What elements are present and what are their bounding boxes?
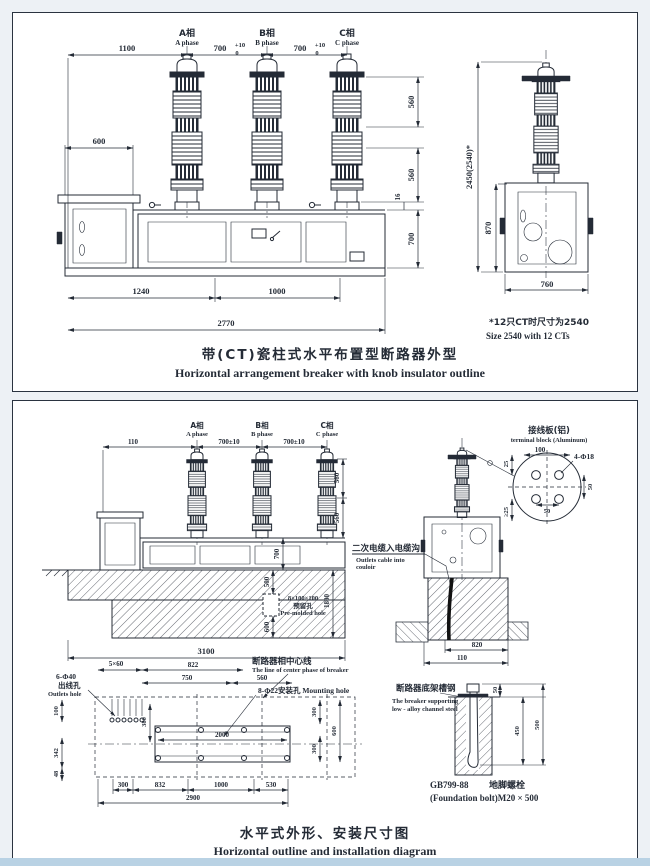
terminal-block-detail: 接线板(铝) terminal block (Aluminum) 100 4-Φ… [466,425,594,524]
plan-centerline-zh: 断路器相中心线 [252,656,312,667]
p1-dim-870: 870 [483,222,493,235]
bolt-en: (Foundation bolt)M20 × 500 [430,793,539,803]
p1-phase-b-en: B phase [255,39,279,47]
insulator-phase-c [330,54,364,202]
channel-en2: low - alloy channel steel [392,706,458,713]
p1-tol-zero-ab: 0 [235,50,238,57]
plan-dim-100: 100 [53,706,60,716]
insulator-phase-a [170,54,204,202]
cable-label-en1: Outlets cable into [356,557,405,564]
terminal-dim-25: 25 [503,460,510,467]
p2-dim-500: 500 [263,576,271,587]
bolt-dim-500: 500 [534,720,541,730]
p2-phase-b-zh: B相 [255,420,269,430]
p1-dim-600: 600 [93,136,106,146]
elev-insulator-c [317,449,337,538]
bolt-dim-50: 50 [492,687,499,694]
p1-title-zh: 带(CT)瓷柱式水平布置型断路器外型 [202,346,458,363]
p2-dim-700-frame: 700 [273,548,281,559]
front-view: A相 A phase B相 B phase C相 C phase 1100 70… [57,27,424,334]
p1-dim-16: 16 [394,193,402,201]
p2-phase-c-zh: C相 [320,420,334,430]
elev-insulator-b [252,449,272,538]
p1-dim-1000: 1000 [269,286,286,296]
p1-dim-560-upper: 560 [406,96,416,109]
side-cabinet [500,183,593,272]
terminal-dim-50r: 50 [587,484,594,491]
front-elevation: A相 A phase B相 B phase C相 C phase 110 700… [42,420,347,661]
p1-phase-c-zh: C相 [339,27,355,39]
p1-tol-plus-ab: +10 [235,42,245,49]
p1-dim-700-bc: 700 [294,43,307,53]
bolt-dim-450: 450 [514,726,521,736]
breaker-frame [65,202,385,276]
drawing-sheet: { "page": { "ink": "#242b36", "backgroun… [0,0,650,866]
p2-hole-en: Pre-molded hole [280,610,326,617]
channel-en1: The breaker supporting [392,698,459,705]
elev-cabinet [97,512,143,570]
plan-dim-750: 750 [182,674,193,682]
plan-dim-530: 530 [266,781,277,789]
p2-title-en: Horizontal outline and installation diag… [214,844,437,858]
p2-dim-700-ab: 700±10 [218,438,240,446]
plan-grid: 5×60 [109,660,124,668]
side-view: 2450(2540)* 870 760 *12只CT时尺寸为2540 Size … [464,50,593,341]
side-foundation [396,578,528,642]
p1-dim-760: 760 [541,279,554,289]
page-bottom-strip [0,858,650,866]
channel-zh: 断路器底架槽钢 [396,683,456,694]
p1-note-zh: *12只CT时尺寸为2540 [489,316,589,328]
p2-dim-560-lower: 560 [333,512,341,523]
elev-frame [140,538,345,568]
p1-tol-plus-bc: +10 [315,42,325,49]
p1-dim-700-frame: 700 [406,233,416,246]
p2-phase-b-en: B phase [251,431,273,438]
p2-phase-a-en: A phase [186,431,208,438]
p1-dim-1240: 1240 [133,286,150,296]
terminal-dim-ge25: ≥25 [503,506,510,517]
terminal-holes: 4-Φ18 [574,452,594,461]
p2-hole-size: 8×100×100 [288,595,318,602]
plan-outlets-en: Outlets hole [48,691,82,698]
plan-outlets-zh: 出线孔 [58,680,81,690]
p1-phase-b-zh: B相 [259,27,275,39]
plan-dim-1000: 1000 [214,781,229,789]
control-cabinet [57,195,140,268]
terminal-label-zh: 接线板(铝) [528,425,570,436]
p1-dim-700-ab: 700 [214,43,227,53]
plan-dim-300b: 300 [118,781,129,789]
cable-label-zh: 二次电缆入电缆沟 [352,543,420,554]
elev-insulator-a [187,449,207,538]
plan-dim-380: 380 [141,717,148,727]
p1-dim-2770: 2770 [218,318,235,328]
p1-phase-a-en: A phase [175,39,199,47]
plan-dim-300tr: 300 [311,707,318,717]
plan-dim-832: 832 [155,781,166,789]
bolt-zh: 地脚螺栓 [489,779,525,791]
p1-dim-total-height: 2450(2540)* [464,145,474,189]
p2-title-zh: 水平式外形、安装尺寸图 [240,825,411,842]
p1-tol-zero-bc: 0 [315,50,318,57]
p1-phase-a-zh: A相 [179,27,195,39]
plan-dim-600r: 600 [331,726,338,736]
side-elevation: 接线板(铝) terminal block (Aluminum) 100 4-Φ… [352,425,594,666]
outlet-holes [110,699,144,722]
plan-outlets-qty: 6-Φ40 [56,672,76,681]
terminal-dim-50b: 50 [544,508,551,515]
plan-dim-342: 342 [53,748,60,758]
p2-dim-600-found: 600 [263,621,271,632]
side-insulator [522,63,570,183]
p2-dim-820: 820 [472,641,483,649]
plan-dim-2900: 2900 [186,794,201,802]
plan-dim-48: 48 [53,770,60,777]
plan-view: 5×60 822 750 560 6-Φ40 出线孔 Outlets hole … [48,656,362,807]
terminal-label-en: terminal block (Aluminum) [511,437,588,444]
p1-dim-1100: 1100 [119,43,136,53]
insulator-phase-b [250,54,284,202]
outline-drawing: A相 A phase B相 B phase C相 C phase 1100 70… [13,13,636,390]
plan-dim-822: 822 [188,661,199,669]
panel-installation-diagram: A相 A phase B相 B phase C相 C phase 110 700… [12,400,638,860]
foundation-bolt-detail: 断路器底架槽钢 The breaker supporting low - all… [392,683,546,803]
p2-phase-c-en: C phase [316,431,338,438]
side-insulator2 [448,448,476,518]
p2-dim-700-bc: 700±10 [283,438,305,446]
plan-dim-560: 560 [257,674,268,682]
bolt-std: GB799-88 [430,780,469,790]
p2-phase-a-zh: A相 [190,420,204,430]
p2-dim-110: 110 [128,438,139,446]
cable-label-en2: couloir [356,564,376,571]
plan-centerline-en: The line of center phase of breaker [252,667,349,674]
p1-note-en: Size 2540 with 12 CTs [486,331,570,341]
p1-title-en: Horizontal arrangement breaker with knob… [175,366,486,380]
panel-breaker-outline: A相 A phase B相 B phase C相 C phase 1100 70… [12,12,638,392]
p2-dim-560-upper: 560 [333,472,341,483]
terminal-dim-100: 100 [535,446,546,454]
p2-dim-3100: 3100 [198,646,215,656]
p2-dim-1800: 1800 [323,594,331,609]
p2-dim-110s: 110 [457,654,468,662]
p1-dim-560-lower: 560 [406,169,416,182]
plan-dim-2000: 2000 [215,731,230,739]
plan-mounting: 8-Φ22安装孔 Mounting hole [258,685,350,695]
plan-dim-300br: 300 [311,744,318,754]
p1-phase-c-en: C phase [335,39,359,47]
p2-hole-zh: 预留孔 [293,601,313,610]
installation-drawing: A相 A phase B相 B phase C相 C phase 110 700… [13,401,636,858]
